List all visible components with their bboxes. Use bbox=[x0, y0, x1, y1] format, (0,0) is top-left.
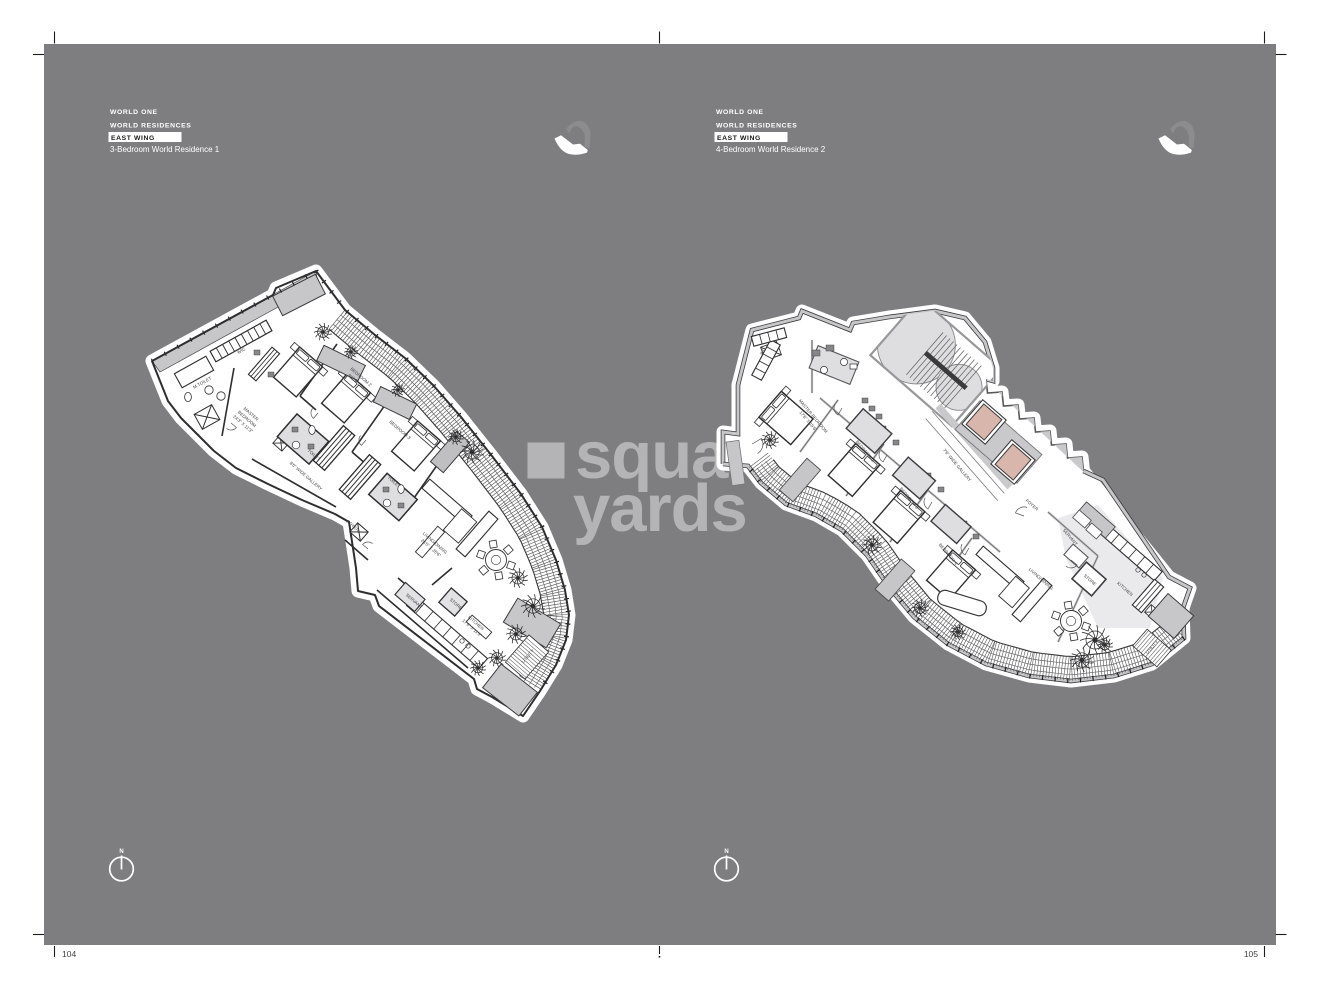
svg-text:EAST WING: EAST WING bbox=[111, 135, 155, 142]
svg-text:WORLD ONE: WORLD ONE bbox=[716, 109, 764, 116]
svg-text:N: N bbox=[724, 849, 728, 855]
svg-text:WORLD RESIDENCES: WORLD RESIDENCES bbox=[110, 123, 191, 130]
svg-text:3-Bedroom World Residence 1: 3-Bedroom World Residence 1 bbox=[110, 145, 220, 154]
svg-text:WORLD RESIDENCES: WORLD RESIDENCES bbox=[716, 123, 797, 130]
svg-text:105: 105 bbox=[1244, 949, 1258, 959]
svg-text:yards: yards bbox=[573, 471, 747, 546]
svg-text:EAST WING: EAST WING bbox=[717, 135, 761, 142]
svg-text:104: 104 bbox=[62, 949, 76, 959]
svg-text:N: N bbox=[119, 849, 123, 855]
svg-text:4-Bedroom World Residence 2: 4-Bedroom World Residence 2 bbox=[716, 145, 826, 154]
svg-text:WORLD ONE: WORLD ONE bbox=[110, 109, 158, 116]
